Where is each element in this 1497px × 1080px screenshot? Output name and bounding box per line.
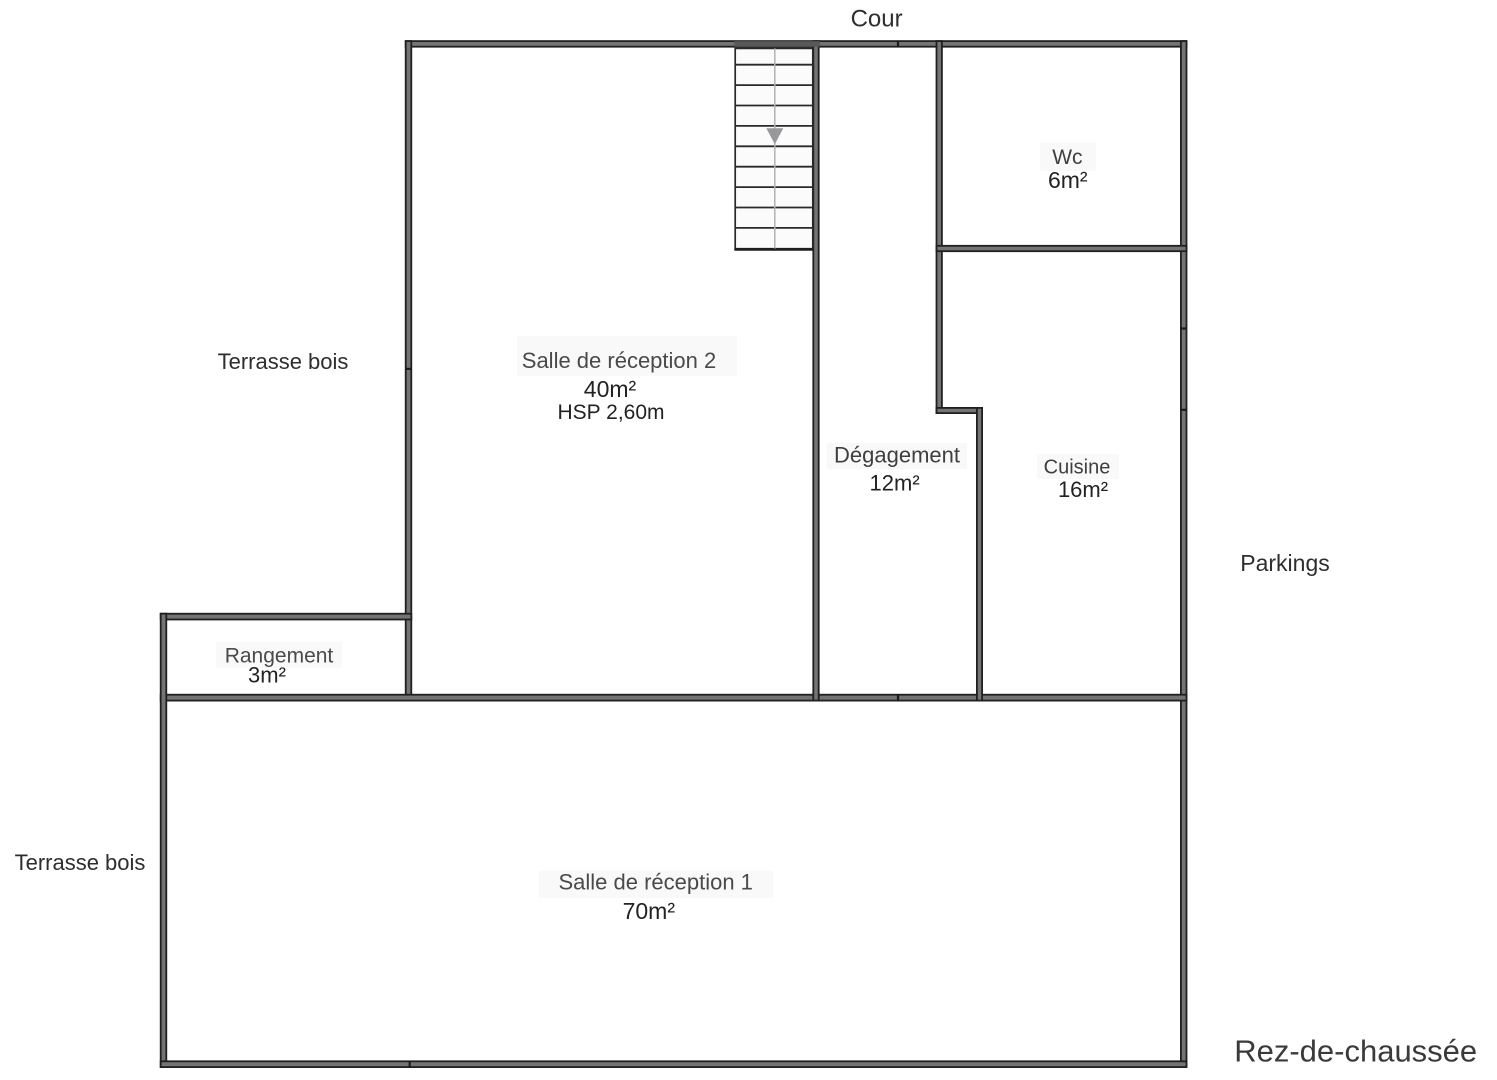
svg-text:12m²: 12m² <box>870 471 920 496</box>
svg-text:Cuisine: Cuisine <box>1044 457 1111 479</box>
svg-text:40m²: 40m² <box>584 376 637 402</box>
svg-text:Dégagement: Dégagement <box>834 443 960 468</box>
svg-text:Salle de réception 1: Salle de réception 1 <box>558 870 752 895</box>
svg-text:HSP 2,60m: HSP 2,60m <box>558 401 665 424</box>
svg-text:Salle de réception 2: Salle de réception 2 <box>522 348 716 373</box>
svg-text:16m²: 16m² <box>1058 477 1108 502</box>
svg-text:Terrasse bois: Terrasse bois <box>218 349 349 374</box>
svg-text:Cour: Cour <box>851 6 903 33</box>
svg-text:70m²: 70m² <box>623 898 676 924</box>
svg-text:6m²: 6m² <box>1048 167 1088 193</box>
svg-text:Rez-de-chaussée: Rez-de-chaussée <box>1234 1034 1477 1069</box>
svg-text:Parkings: Parkings <box>1240 550 1329 576</box>
svg-text:Wc: Wc <box>1052 146 1082 169</box>
svg-text:Terrasse bois: Terrasse bois <box>15 850 146 875</box>
svg-text:3m²: 3m² <box>248 663 286 688</box>
